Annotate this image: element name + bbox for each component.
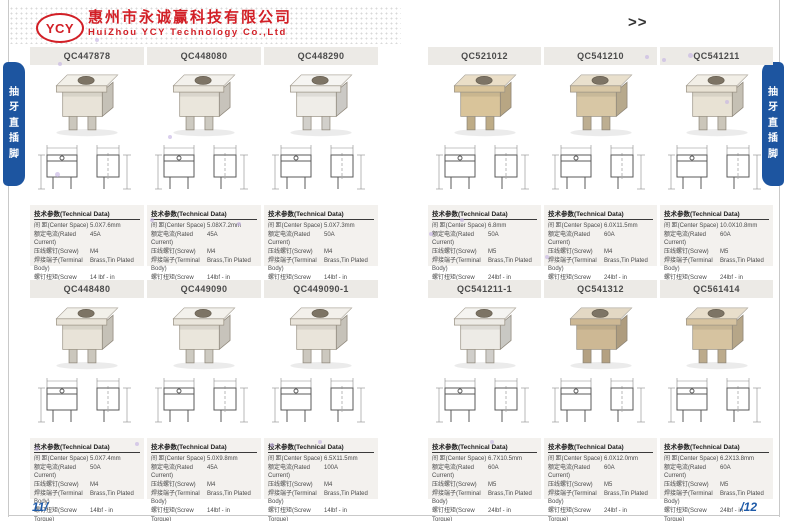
table-row-screw: 压线螺钉(Screw) M4 — [268, 481, 374, 490]
label-screw: 压线螺钉(Screw) — [664, 481, 720, 490]
table-title: 技术参数(Technical Data) — [151, 208, 257, 220]
product-cell-QC561414: QC561414 — [660, 280, 773, 499]
value-rated-current: 60A — [720, 464, 769, 481]
table-row-screw: 压线螺钉(Screw) M5 — [664, 248, 769, 257]
terminal-block-photo-icon — [665, 66, 769, 138]
value-terminal-body: Brass,Tin Plated — [324, 490, 374, 507]
dimension-drawing — [660, 139, 773, 205]
product-code: QC448080 — [147, 47, 261, 65]
table-row-rated-current: 额定电流(Rated Current) 60A — [664, 464, 769, 481]
product-code: QC448480 — [30, 280, 144, 298]
table-row-terminal-body: 焊接端子(Terminal Body) Brass,Tin Plated — [34, 257, 140, 274]
technical-data-table: 技术参数(Technical Data) 间 距(Center Space) 6… — [428, 205, 541, 266]
confetti-dot — [490, 440, 494, 444]
value-center-space: 6.0X12.0mm — [604, 455, 653, 464]
table-row-screw: 压线螺钉(Screw) M5 — [432, 248, 537, 257]
terminal-block-photo-icon — [433, 299, 537, 371]
confetti-dot — [168, 135, 172, 139]
confetti-dot — [237, 222, 241, 226]
table-title: 技术参数(Technical Data) — [268, 208, 374, 220]
confetti-dot — [150, 218, 154, 222]
value-screw-torque: 14lbf - in — [324, 507, 374, 521]
label-center-space: 间 距(Center Space) — [548, 222, 604, 231]
value-rated-current: 60A — [604, 231, 653, 248]
product-cell-QC449090-1: QC449090-1 — [264, 280, 378, 499]
table-row-terminal-body: 焊接端子(Terminal Body) Brass,Tin Plated — [151, 257, 257, 274]
value-center-space: 6.8mm — [488, 222, 537, 231]
technical-drawing-icon — [35, 141, 139, 203]
confetti-dot — [58, 62, 62, 66]
value-center-space: 5.0X9.8mm — [207, 455, 257, 464]
label-screw: 压线螺钉(Screw) — [151, 481, 207, 490]
product-code: QC561414 — [660, 280, 773, 298]
value-rated-current: 60A — [604, 464, 653, 481]
tab-char: 脚 — [9, 149, 19, 162]
table-row-rated-current: 额定电流(Rated Current) 45A — [151, 464, 257, 481]
confetti-dot — [318, 440, 322, 444]
value-terminal-body: Brass,Tin Plated — [604, 490, 653, 507]
dimension-drawing — [264, 139, 378, 205]
table-row-terminal-body: 焊接端子(Terminal Body) Brass,Tin Plated — [664, 257, 769, 274]
confetti-dot — [545, 255, 549, 259]
confetti-dot — [688, 53, 693, 58]
product-cell-QC521012: QC521012 — [428, 47, 541, 266]
product-grid-left-top: QC447878 — [30, 47, 378, 266]
dimension-drawing — [544, 372, 657, 438]
terminal-block-photo-icon — [549, 299, 653, 371]
table-row-screw-torque: 螺钉扭矩(Screw Torque) 24lbf - in — [548, 507, 653, 521]
ycy-logo-icon: YCY — [36, 13, 84, 43]
confetti-dot — [135, 442, 139, 446]
label-center-space: 间 距(Center Space) — [268, 455, 324, 464]
label-rated-current: 额定电流(Rated Current) — [268, 231, 324, 248]
label-screw-torque: 螺钉扭矩(Screw Torque) — [664, 507, 720, 521]
value-rated-current: 60A — [488, 464, 537, 481]
technical-data-table: 技术参数(Technical Data) 间 距(Center Space) 6… — [264, 438, 378, 499]
dimension-drawing — [264, 372, 378, 438]
label-rated-current: 额定电流(Rated Current) — [151, 231, 207, 248]
confetti-dot — [35, 447, 39, 451]
product-photo — [428, 65, 541, 139]
product-cell-QC541211: QC541211 — [660, 47, 773, 266]
product-code: QC448290 — [264, 47, 378, 65]
product-photo — [30, 298, 144, 372]
label-rated-current: 额定电流(Rated Current) — [151, 464, 207, 481]
dimension-drawing — [147, 372, 261, 438]
table-row-rated-current: 额定电流(Rated Current) 50A — [432, 231, 537, 248]
terminal-block-photo-icon — [152, 299, 256, 371]
table-row-rated-current: 额定电流(Rated Current) 60A — [548, 464, 653, 481]
label-terminal-body: 焊接端子(Terminal Body) — [151, 257, 207, 274]
value-screw: M5 — [720, 248, 769, 257]
terminal-block-photo-icon — [665, 299, 769, 371]
dimension-drawing — [660, 372, 773, 438]
label-screw: 压线螺钉(Screw) — [432, 248, 488, 257]
page-number-right: /12 — [740, 500, 757, 514]
table-row-terminal-body: 焊接端子(Terminal Body) Brass,Tin Plated — [268, 490, 374, 507]
value-rated-current: 50A — [324, 231, 374, 248]
product-photo — [147, 65, 261, 139]
terminal-block-photo-icon — [269, 299, 373, 371]
terminal-block-photo-icon — [35, 66, 139, 138]
technical-data-table: 技术参数(Technical Data) 间 距(Center Space) 5… — [147, 205, 261, 266]
value-terminal-body: Brass,Tin Plated — [604, 257, 653, 274]
value-center-space: 10.0X10.8mm — [720, 222, 769, 231]
product-code: QC541312 — [544, 280, 657, 298]
tab-char: 牙 — [9, 102, 19, 115]
dimension-drawing — [428, 372, 541, 438]
product-photo — [428, 298, 541, 372]
value-screw: M5 — [488, 481, 537, 490]
table-row-screw: 压线螺钉(Screw) M5 — [548, 481, 653, 490]
terminal-block-photo-icon — [269, 66, 373, 138]
terminal-block-photo-icon — [152, 66, 256, 138]
table-title: 技术参数(Technical Data) — [432, 441, 537, 453]
table-row-terminal-body: 焊接端子(Terminal Body) Brass,Tin Plated — [548, 257, 653, 274]
technical-data-table: 技术参数(Technical Data) 间 距(Center Space) 6… — [544, 205, 657, 266]
label-center-space: 间 距(Center Space) — [151, 222, 207, 231]
table-row-terminal-body: 焊接端子(Terminal Body) Brass,Tin Plated — [432, 490, 537, 507]
dimension-drawing — [428, 139, 541, 205]
product-cell-QC448080: QC448080 — [147, 47, 261, 266]
label-rated-current: 额定电流(Rated Current) — [268, 464, 324, 481]
product-cell-QC541210: QC541210 — [544, 47, 657, 266]
table-title: 技术参数(Technical Data) — [151, 441, 257, 453]
label-terminal-body: 焊接端子(Terminal Body) — [34, 257, 90, 274]
label-screw-torque: 螺钉扭矩(Screw Torque) — [268, 507, 324, 521]
table-row-rated-current: 额定电流(Rated Current) 50A — [268, 231, 374, 248]
label-center-space: 间 距(Center Space) — [432, 455, 488, 464]
table-title: 技术参数(Technical Data) — [548, 441, 653, 453]
table-title: 技术参数(Technical Data) — [664, 208, 769, 220]
table-title: 技术参数(Technical Data) — [664, 441, 769, 453]
label-rated-current: 额定电流(Rated Current) — [664, 464, 720, 481]
technical-drawing-icon — [433, 374, 537, 436]
confetti-dot — [725, 100, 729, 104]
table-row-center-space: 间 距(Center Space) 6.5X11.5mm — [268, 455, 374, 464]
label-center-space: 间 距(Center Space) — [548, 455, 604, 464]
product-photo — [660, 65, 773, 139]
label-rated-current: 额定电流(Rated Current) — [548, 464, 604, 481]
value-terminal-body: Brass,Tin Plated — [488, 490, 537, 507]
value-screw: M5 — [720, 481, 769, 490]
label-terminal-body: 焊接端子(Terminal Body) — [664, 257, 720, 274]
product-code: QC541210 — [544, 47, 657, 65]
value-screw-torque: 24lbf - in — [604, 507, 653, 521]
table-row-center-space: 间 距(Center Space) 5.0X9.8mm — [151, 455, 257, 464]
value-terminal-body: Brass,Tin Plated — [720, 257, 769, 274]
product-photo — [30, 65, 144, 139]
label-screw: 压线螺钉(Screw) — [34, 481, 90, 490]
table-row-screw: 压线螺钉(Screw) M4 — [548, 248, 653, 257]
product-photo — [544, 298, 657, 372]
value-terminal-body: Brass,Tin Plated — [324, 257, 374, 274]
label-terminal-body: 焊接端子(Terminal Body) — [268, 257, 324, 274]
value-center-space: 6.5X11.5mm — [324, 455, 374, 464]
value-rated-current: 45A — [90, 231, 140, 248]
value-rated-current: 45A — [207, 231, 257, 248]
table-row-screw: 压线螺钉(Screw) M5 — [432, 481, 537, 490]
table-row-center-space: 间 距(Center Space) 6.0X11.5mm — [548, 222, 653, 231]
technical-drawing-icon — [152, 141, 256, 203]
value-screw-torque: 14lbf - in — [207, 507, 257, 521]
technical-drawing-icon — [35, 374, 139, 436]
catalog-page: YCY 惠州市永诚赢科技有限公司 HuiZhou YCY Technology … — [0, 0, 787, 521]
terminal-block-photo-icon — [35, 299, 139, 371]
product-photo — [544, 65, 657, 139]
label-screw: 压线螺钉(Screw) — [548, 248, 604, 257]
product-code: QC541211 — [660, 47, 773, 65]
company-name-cn: 惠州市永诚赢科技有限公司 — [88, 9, 292, 26]
side-tab-left-category: 抽 牙 直 插 脚 — [3, 62, 25, 186]
table-row-terminal-body: 焊接端子(Terminal Body) Brass,Tin Plated — [268, 257, 374, 274]
technical-drawing-icon — [269, 374, 373, 436]
table-row-center-space: 间 距(Center Space) 5.0X7.6mm — [34, 222, 140, 231]
table-row-center-space: 间 距(Center Space) 5.0X7.3mm — [268, 222, 374, 231]
confetti-dot — [662, 58, 666, 62]
value-screw: M4 — [90, 248, 140, 257]
value-screw: M4 — [207, 481, 257, 490]
label-screw: 压线螺钉(Screw) — [548, 481, 604, 490]
next-page-arrows-icon[interactable]: >> — [628, 14, 648, 31]
label-screw-torque: 螺钉扭矩(Screw Torque) — [548, 507, 604, 521]
label-terminal-body: 焊接端子(Terminal Body) — [548, 490, 604, 507]
tab-char: 抽 — [9, 87, 19, 100]
value-screw: M5 — [488, 248, 537, 257]
value-center-space: 6.2X13.8mm — [720, 455, 769, 464]
value-center-space: 6.0X11.5mm — [604, 222, 653, 231]
value-terminal-body: Brass,Tin Plated — [488, 257, 537, 274]
value-terminal-body: Brass,Tin Plated — [207, 490, 257, 507]
value-terminal-body: Brass,Tin Plated — [207, 257, 257, 274]
technical-drawing-icon — [549, 141, 653, 203]
product-cell-QC541211-1: QC541211-1 — [428, 280, 541, 499]
label-screw: 压线螺钉(Screw) — [664, 248, 720, 257]
tab-char: 插 — [9, 133, 19, 146]
confetti-dot — [95, 38, 99, 42]
product-grid-left-bottom: QC448480 — [30, 280, 378, 499]
technical-data-table: 技术参数(Technical Data) 间 距(Center Space) 6… — [428, 438, 541, 499]
product-code: QC449090 — [147, 280, 261, 298]
confetti-dot — [645, 55, 649, 59]
value-screw-torque: 14lbf - in — [90, 507, 140, 521]
label-rated-current: 额定电流(Rated Current) — [432, 231, 488, 248]
technical-data-table: 技术参数(Technical Data) 间 距(Center Space) 1… — [660, 205, 773, 266]
technical-drawing-icon — [665, 141, 769, 203]
table-row-rated-current: 额定电流(Rated Current) 45A — [151, 231, 257, 248]
label-center-space: 间 距(Center Space) — [664, 455, 720, 464]
table-row-center-space: 间 距(Center Space) 5.08X7.2mm — [151, 222, 257, 231]
technical-data-table: 技术参数(Technical Data) 间 距(Center Space) 6… — [660, 438, 773, 499]
label-terminal-body: 焊接端子(Terminal Body) — [664, 490, 720, 507]
label-terminal-body: 焊接端子(Terminal Body) — [548, 257, 604, 274]
product-cell-QC449090: QC449090 — [147, 280, 261, 499]
table-row-screw: 压线螺钉(Screw) M4 — [151, 248, 257, 257]
label-screw: 压线螺钉(Screw) — [268, 481, 324, 490]
product-grid-right-bottom: QC541211-1 — [428, 280, 773, 499]
table-row-center-space: 间 距(Center Space) 6.0X12.0mm — [548, 455, 653, 464]
label-screw: 压线螺钉(Screw) — [151, 248, 207, 257]
table-row-rated-current: 额定电流(Rated Current) 100A — [268, 464, 374, 481]
product-photo — [264, 298, 378, 372]
label-center-space: 间 距(Center Space) — [34, 455, 90, 464]
table-row-screw-torque: 螺钉扭矩(Screw Torque) 14lbf - in — [268, 507, 374, 521]
value-rated-current: 100A — [324, 464, 374, 481]
table-row-terminal-body: 焊接端子(Terminal Body) Brass,Tin Plated — [151, 490, 257, 507]
value-screw: M5 — [604, 481, 653, 490]
table-row-screw-torque: 螺钉扭矩(Screw Torque) 14lbf - in — [34, 507, 140, 521]
table-row-screw-torque: 螺钉扭矩(Screw Torque) 14lbf - in — [151, 507, 257, 521]
label-center-space: 间 距(Center Space) — [432, 222, 488, 231]
technical-data-table: 技术参数(Technical Data) 间 距(Center Space) 5… — [30, 205, 144, 266]
label-center-space: 间 距(Center Space) — [268, 222, 324, 231]
value-center-space: 5.0X7.3mm — [324, 222, 374, 231]
table-row-screw-torque: 螺钉扭矩(Screw Torque) 24lbf - in — [432, 507, 537, 521]
label-terminal-body: 焊接端子(Terminal Body) — [268, 490, 324, 507]
product-photo — [147, 298, 261, 372]
value-rated-current: 50A — [488, 231, 537, 248]
value-screw: M4 — [324, 481, 374, 490]
label-rated-current: 额定电流(Rated Current) — [664, 231, 720, 248]
label-center-space: 间 距(Center Space) — [664, 222, 720, 231]
product-code: QC447878 — [30, 47, 144, 65]
table-row-screw: 压线螺钉(Screw) M4 — [268, 248, 374, 257]
technical-data-table: 技术参数(Technical Data) 间 距(Center Space) 5… — [264, 205, 378, 266]
table-row-rated-current: 额定电流(Rated Current) 45A — [34, 231, 140, 248]
table-row-screw: 压线螺钉(Screw) M4 — [151, 481, 257, 490]
table-row-rated-current: 额定电流(Rated Current) 50A — [34, 464, 140, 481]
label-screw: 压线螺钉(Screw) — [34, 248, 90, 257]
value-screw-torque: 24lbf - in — [488, 507, 537, 521]
label-rated-current: 额定电流(Rated Current) — [432, 464, 488, 481]
product-code: QC541211-1 — [428, 280, 541, 298]
product-code: QC449090-1 — [264, 280, 378, 298]
value-center-space: 5.0X7.6mm — [90, 222, 140, 231]
table-row-rated-current: 额定电流(Rated Current) 60A — [432, 464, 537, 481]
value-terminal-body: Brass,Tin Plated — [90, 257, 140, 274]
label-screw-torque: 螺钉扭矩(Screw Torque) — [151, 507, 207, 521]
value-terminal-body: Brass,Tin Plated — [90, 490, 140, 507]
table-row-terminal-body: 焊接端子(Terminal Body) Brass,Tin Plated — [548, 490, 653, 507]
table-row-screw: 压线螺钉(Screw) M4 — [34, 248, 140, 257]
value-rated-current: 50A — [90, 464, 140, 481]
product-photo — [660, 298, 773, 372]
table-title: 技术参数(Technical Data) — [432, 208, 537, 220]
table-row-screw: 压线螺钉(Screw) M4 — [34, 481, 140, 490]
label-rated-current: 额定电流(Rated Current) — [34, 464, 90, 481]
tab-char: 直 — [9, 118, 19, 131]
product-cell-QC448480: QC448480 — [30, 280, 144, 499]
table-row-screw: 压线螺钉(Screw) M5 — [664, 481, 769, 490]
table-row-center-space: 间 距(Center Space) 5.0X7.4mm — [34, 455, 140, 464]
technical-drawing-icon — [665, 374, 769, 436]
confetti-dot — [270, 443, 274, 447]
table-row-center-space: 间 距(Center Space) 6.2X13.8mm — [664, 455, 769, 464]
table-row-rated-current: 额定电流(Rated Current) 60A — [664, 231, 769, 248]
product-cell-QC448290: QC448290 — [264, 47, 378, 266]
table-row-terminal-body: 焊接端子(Terminal Body) Brass,Tin Plated — [34, 490, 140, 507]
technical-drawing-icon — [549, 374, 653, 436]
label-center-space: 间 距(Center Space) — [151, 455, 207, 464]
technical-drawing-icon — [152, 374, 256, 436]
value-screw: M4 — [324, 248, 374, 257]
value-screw: M4 — [90, 481, 140, 490]
dimension-drawing — [30, 372, 144, 438]
label-terminal-body: 焊接端子(Terminal Body) — [432, 490, 488, 507]
technical-drawing-icon — [269, 141, 373, 203]
dimension-drawing — [30, 139, 144, 205]
product-cell-QC447878: QC447878 — [30, 47, 144, 266]
page-number-left: 11/ — [32, 500, 48, 514]
table-row-rated-current: 额定电流(Rated Current) 60A — [548, 231, 653, 248]
company-name-en: HuiZhou YCY Technology Co.,Ltd — [88, 28, 292, 39]
table-title: 技术参数(Technical Data) — [34, 441, 140, 453]
dimension-drawing — [147, 139, 261, 205]
confetti-dot — [429, 232, 433, 236]
value-center-space: 6.7X10.5mm — [488, 455, 537, 464]
table-row-terminal-body: 焊接端子(Terminal Body) Brass,Tin Plated — [432, 257, 537, 274]
label-terminal-body: 焊接端子(Terminal Body) — [432, 257, 488, 274]
technical-data-table: 技术参数(Technical Data) 间 距(Center Space) 5… — [30, 438, 144, 499]
label-rated-current: 额定电流(Rated Current) — [34, 231, 90, 248]
table-title: 技术参数(Technical Data) — [548, 208, 653, 220]
value-screw: M4 — [207, 248, 257, 257]
table-row-center-space: 间 距(Center Space) 6.7X10.5mm — [432, 455, 537, 464]
dimension-drawing — [544, 139, 657, 205]
technical-drawing-icon — [433, 141, 537, 203]
value-rated-current: 60A — [720, 231, 769, 248]
value-center-space: 5.0X7.4mm — [90, 455, 140, 464]
label-rated-current: 额定电流(Rated Current) — [548, 231, 604, 248]
label-screw-torque: 螺钉扭矩(Screw Torque) — [432, 507, 488, 521]
product-code: QC521012 — [428, 47, 541, 65]
value-rated-current: 45A — [207, 464, 257, 481]
table-row-center-space: 间 距(Center Space) 6.8mm — [432, 222, 537, 231]
label-screw: 压线螺钉(Screw) — [268, 248, 324, 257]
terminal-block-photo-icon — [433, 66, 537, 138]
table-row-center-space: 间 距(Center Space) 10.0X10.8mm — [664, 222, 769, 231]
confetti-dot — [460, 218, 464, 222]
value-center-space: 5.08X7.2mm — [207, 222, 257, 231]
technical-data-table: 技术参数(Technical Data) 间 距(Center Space) 5… — [147, 438, 261, 499]
label-screw: 压线螺钉(Screw) — [432, 481, 488, 490]
confetti-dot — [55, 172, 60, 177]
product-grid-right-top: QC521012 — [428, 47, 773, 266]
label-center-space: 间 距(Center Space) — [34, 222, 90, 231]
terminal-block-photo-icon — [549, 66, 653, 138]
technical-data-table: 技术参数(Technical Data) 间 距(Center Space) 6… — [544, 438, 657, 499]
logo-text: YCY — [46, 21, 74, 36]
table-title: 技术参数(Technical Data) — [34, 208, 140, 220]
product-photo — [264, 65, 378, 139]
company-header: 惠州市永诚赢科技有限公司 HuiZhou YCY Technology Co.,… — [88, 9, 292, 39]
product-cell-QC541312: QC541312 — [544, 280, 657, 499]
value-screw: M4 — [604, 248, 653, 257]
label-terminal-body: 焊接端子(Terminal Body) — [151, 490, 207, 507]
